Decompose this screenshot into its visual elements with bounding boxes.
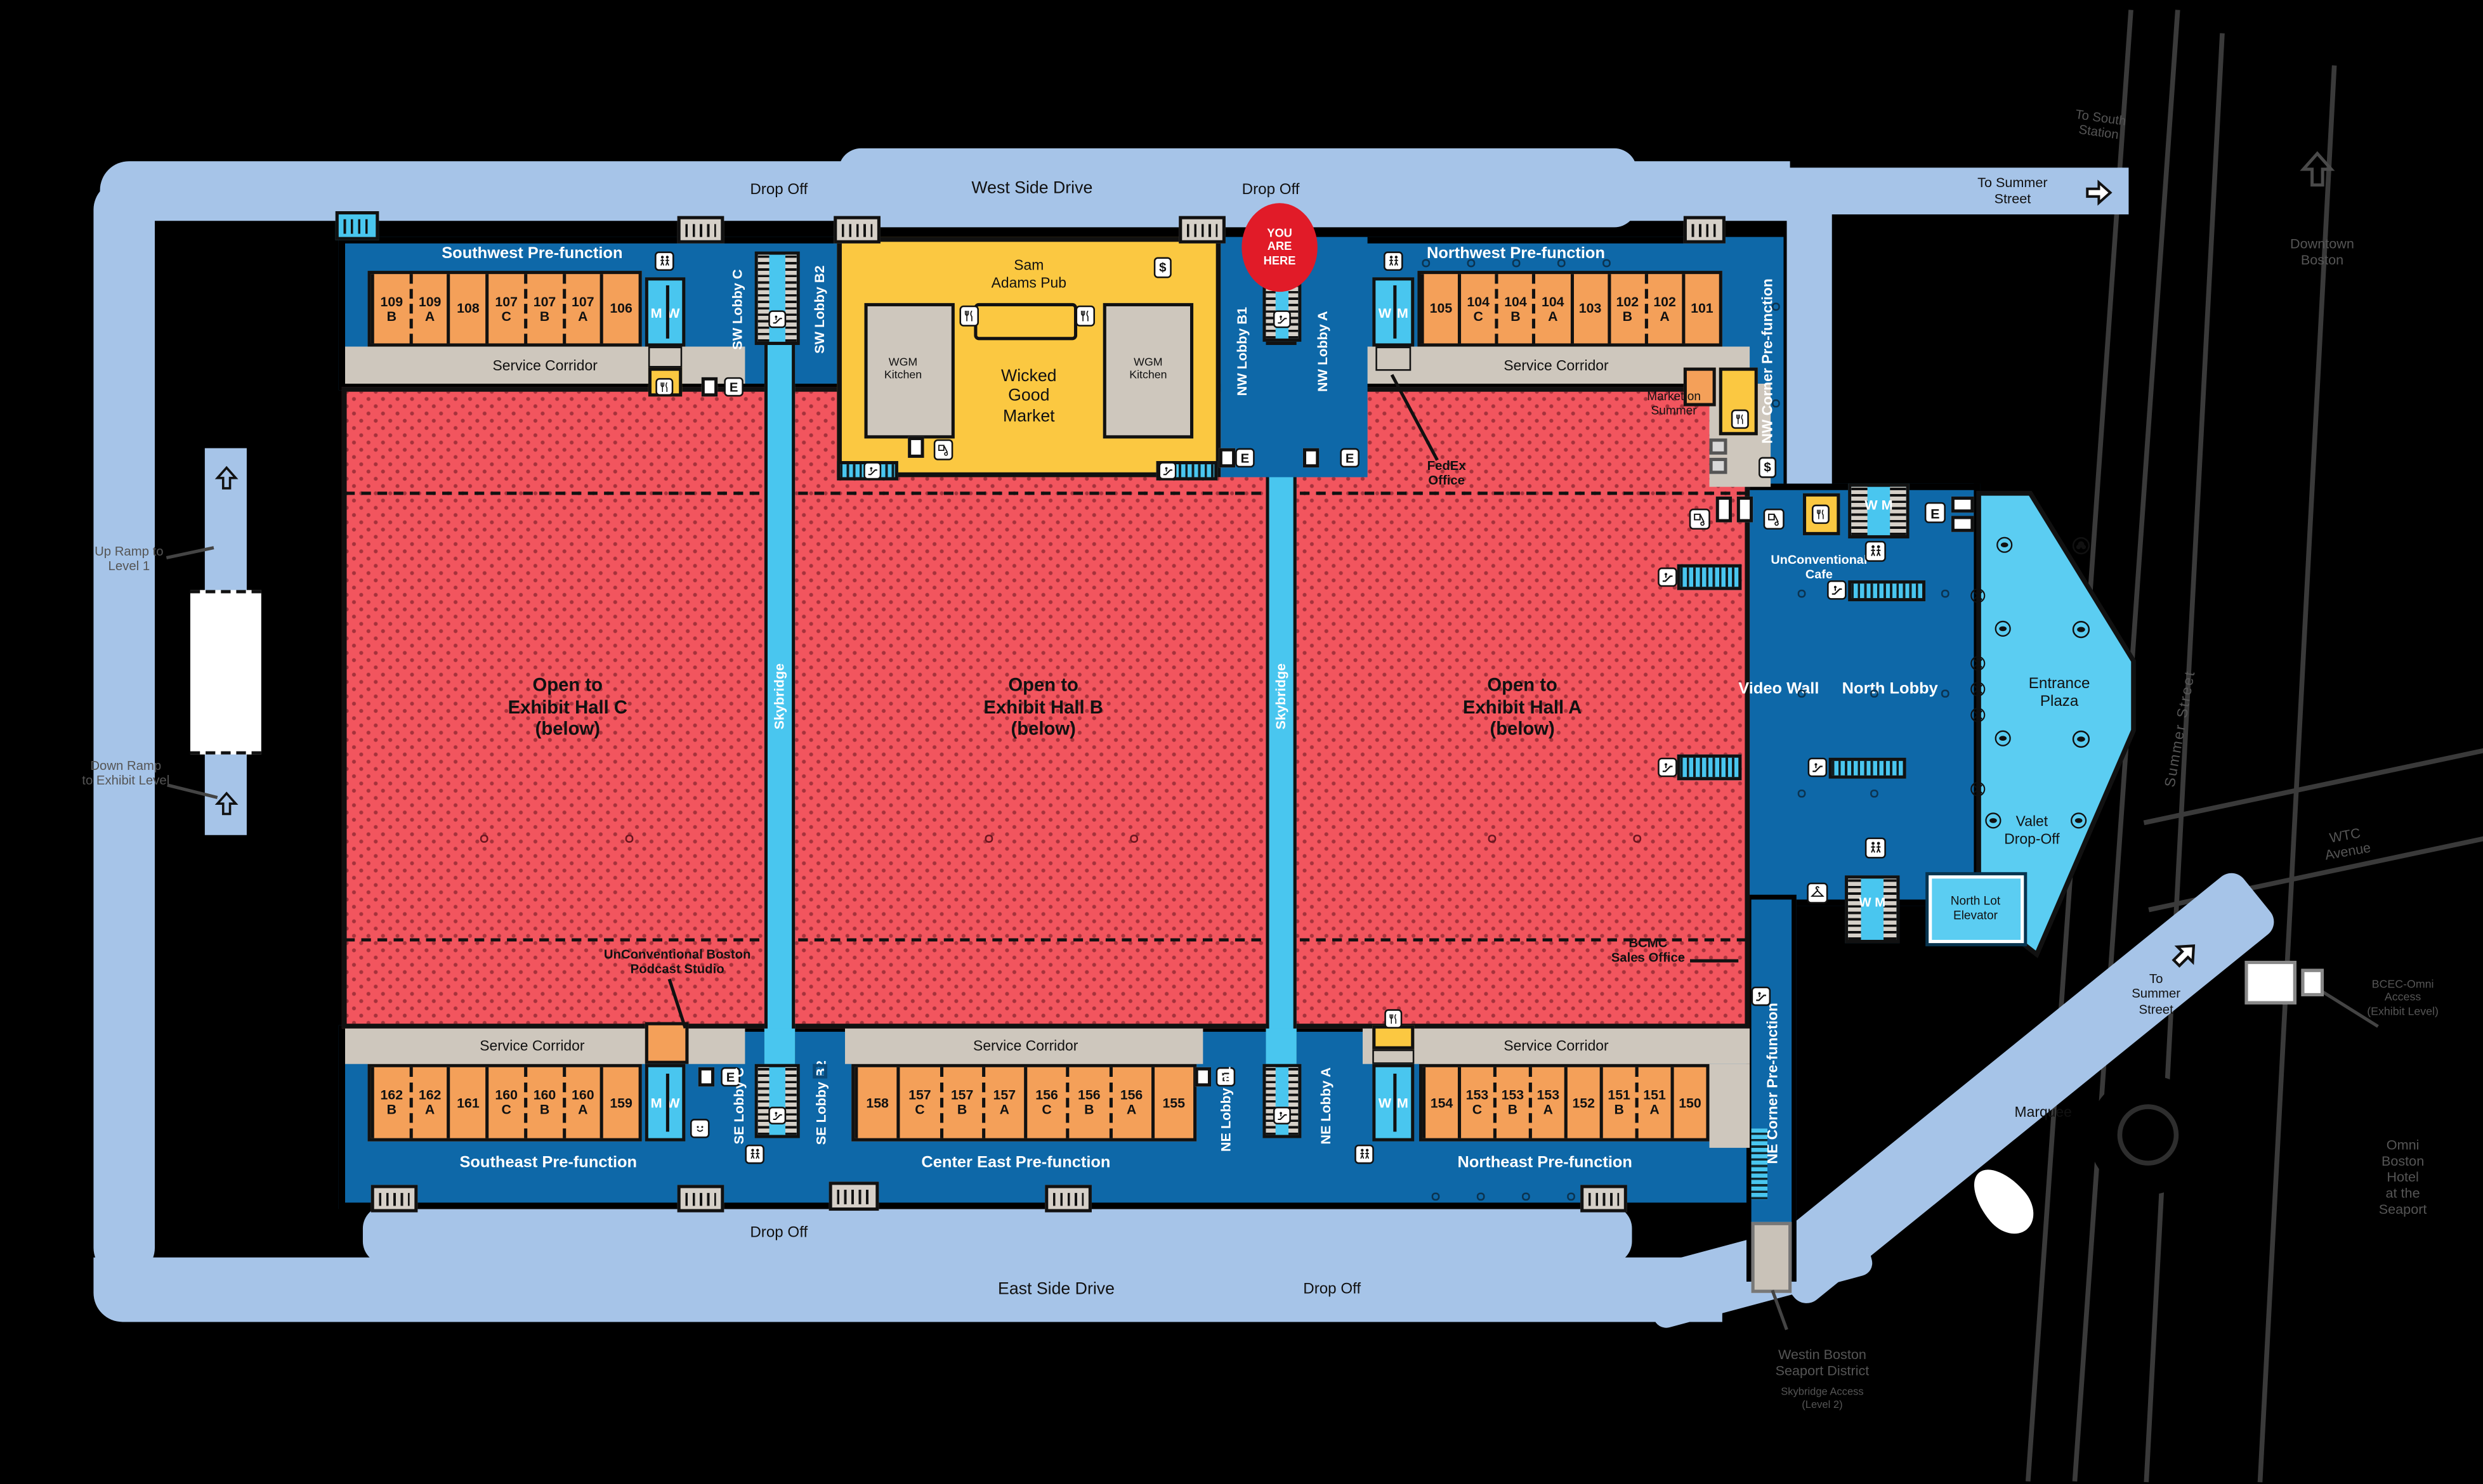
door xyxy=(702,377,717,397)
wgm-kitchen-label: WGMKitchen xyxy=(1129,358,1167,384)
room-159: 159 xyxy=(600,1067,638,1138)
stairs xyxy=(371,1185,418,1212)
omni-hotel-label: OmniBostonHotelat theSeaport xyxy=(2379,1136,2427,1217)
se-skybridge-escalator xyxy=(755,1064,800,1138)
pub-counter xyxy=(974,303,1077,340)
bcmc-leader xyxy=(1690,959,1738,961)
rotary-ring xyxy=(2118,1104,2179,1166)
room-157B: 157B xyxy=(940,1067,982,1138)
entrance-plaza-label: EntrancePlaza xyxy=(2029,675,2090,712)
window xyxy=(813,1064,827,1079)
se-lobby-c-label: SE Lobby C xyxy=(731,1067,747,1144)
sam-adams-pub-label: SamAdams Pub xyxy=(992,257,1066,291)
ne-pantry xyxy=(1372,1050,1414,1064)
room-104C: 104C xyxy=(1458,274,1495,343)
room-104B: 104B xyxy=(1495,274,1533,343)
video-wall-label: Video Wall xyxy=(1738,680,1819,700)
stairs xyxy=(1580,1185,1627,1212)
hall-column xyxy=(1633,835,1640,842)
up-ramp-arrow-icon xyxy=(213,464,240,491)
to-summer-arrow-icon xyxy=(2083,178,2114,208)
hall-b-label: Open toExhibit Hall B(below) xyxy=(983,677,1103,742)
service-corridor-label: Service Corridor xyxy=(1504,358,1608,375)
drop-off-label: Drop Off xyxy=(1242,181,1300,199)
fedex-office-label: FedExOffice xyxy=(1427,459,1466,489)
door xyxy=(908,437,924,458)
room-101: 101 xyxy=(1682,274,1719,343)
escalator-icon xyxy=(1752,987,1771,1006)
column xyxy=(1512,259,1519,266)
food-icon xyxy=(1731,410,1749,429)
escalator-icon xyxy=(1658,568,1677,587)
street-line xyxy=(2258,65,2336,1482)
room-157A: 157A xyxy=(981,1067,1024,1138)
food-icon xyxy=(655,378,673,396)
hall-column xyxy=(626,835,632,842)
column xyxy=(1798,790,1805,797)
sw-restrooms: MW xyxy=(645,277,686,346)
downtown-boston-label: DowntownBoston xyxy=(2290,235,2354,268)
bcec-omni-skybridge xyxy=(2244,961,2296,1005)
drop-off-label: Drop Off xyxy=(750,1224,808,1242)
north-lobby-label: North Lobby xyxy=(1842,680,1938,700)
column xyxy=(1870,689,1877,696)
skybridge-gap xyxy=(1266,1029,1296,1064)
escalator-icon xyxy=(1827,580,1847,600)
restroom-icon xyxy=(745,1145,764,1164)
column xyxy=(1772,303,1779,309)
hall-column xyxy=(1130,835,1137,842)
ne-skybridge-escalator xyxy=(1262,1064,1301,1138)
west-side-drive-bulge xyxy=(839,148,1637,228)
revolving-door-icon xyxy=(2069,811,2088,831)
room-160B: 160B xyxy=(524,1067,562,1138)
room-103: 103 xyxy=(1570,274,1608,343)
podcast-studio-label: UnConventional BostonPodcast Studio xyxy=(604,947,751,978)
column xyxy=(1467,259,1474,266)
nw-restrooms: WM xyxy=(1372,277,1414,346)
ne-prefunction-label: Northeast Pre-function xyxy=(1458,1154,1632,1173)
east-side-drive-label: East Side Drive xyxy=(998,1280,1115,1299)
room-row-ne: 154153C153B153A152151B151A150 xyxy=(1419,1064,1710,1142)
escalator-icon xyxy=(1658,758,1677,778)
escalator-icon xyxy=(1808,758,1828,778)
street-line xyxy=(2144,33,2224,1482)
revolving-door-icon xyxy=(2071,619,2092,640)
column xyxy=(1422,259,1429,266)
room-155: 155 xyxy=(1151,1067,1193,1138)
stairs xyxy=(834,216,881,244)
downtown-arrow-icon xyxy=(2296,148,2338,190)
service-corridor-label: Service Corridor xyxy=(480,1038,584,1055)
stairs xyxy=(678,1185,724,1212)
ne-corridor-wrap xyxy=(1710,1064,1750,1148)
room-107A: 107A xyxy=(562,274,600,343)
stairs xyxy=(678,216,724,244)
room-106: 106 xyxy=(600,274,638,343)
nw-lobby-b1-label: NW Lobby B1 xyxy=(1234,307,1250,396)
column xyxy=(1798,689,1805,696)
sw-pantry xyxy=(648,347,682,368)
atm-icon: $ xyxy=(1759,457,1776,478)
room-row-nw: 105104C104B104A103102B102A101 xyxy=(1417,271,1722,346)
elevator-icon: E xyxy=(1925,502,1946,523)
sw-lobby-b2-label: SW Lobby B2 xyxy=(811,265,827,353)
door-icon xyxy=(1969,780,1987,798)
plaza-access-road xyxy=(1787,190,1832,487)
restroom-icon xyxy=(1865,838,1886,859)
se-restrooms: MW xyxy=(645,1064,686,1142)
to-summer-lower-arrow-icon xyxy=(2169,938,2201,970)
hall-dashed-line xyxy=(345,491,1746,495)
atm-icon: $ xyxy=(1154,257,1172,278)
freight-icon xyxy=(1689,509,1710,530)
hall-column xyxy=(480,835,487,842)
wtc-avenue-label: WTCAvenue xyxy=(2321,823,2372,863)
podcast-studio xyxy=(645,1022,689,1064)
drop-off-label: Drop Off xyxy=(1303,1280,1361,1298)
restroom-icon xyxy=(1865,541,1886,562)
freight-icon xyxy=(934,439,953,460)
room-109B: 109B xyxy=(371,274,409,343)
skybridge-gap xyxy=(764,1029,795,1064)
column xyxy=(1557,259,1564,266)
room-153B: 153B xyxy=(1493,1067,1529,1138)
room-104A: 104A xyxy=(1533,274,1570,343)
room-154: 154 xyxy=(1422,1067,1458,1138)
westin-skybridge xyxy=(1752,1222,1792,1293)
sw-skybridge-escalator xyxy=(755,252,800,345)
ne-cafe-bump xyxy=(1372,1025,1414,1050)
service-corridor-label: Service Corridor xyxy=(493,358,598,375)
stairs xyxy=(1045,1185,1092,1212)
north-lot-elevator-label: North LotElevator xyxy=(1951,895,2000,923)
restroom-icon xyxy=(1354,1145,1374,1164)
room-162A: 162A xyxy=(409,1067,447,1138)
room-150: 150 xyxy=(1671,1067,1707,1138)
ce-prefunction-label: Center East Pre-function xyxy=(921,1154,1110,1173)
hall-a-escalator xyxy=(1677,755,1742,781)
sw-lobby-c-label: SW Lobby C xyxy=(729,269,745,349)
corner-stairs xyxy=(1752,1128,1767,1199)
westin-sub-label: Skybridge Access(Level 2) xyxy=(1781,1387,1863,1412)
tree-icon xyxy=(2071,535,2092,556)
market-on-summer-label: Market onSummer xyxy=(1647,391,1701,419)
drop-off-label: Drop Off xyxy=(750,181,808,199)
elevator-icon: E xyxy=(1340,448,1359,468)
coat-check-icon xyxy=(1807,883,1828,904)
down-ramp-label: Down Rampto Exhibit Level xyxy=(82,758,169,789)
room-109A: 109A xyxy=(409,274,447,343)
elevator-icon: E xyxy=(724,377,744,397)
revolving-door-icon xyxy=(1984,811,2003,831)
freight-icon xyxy=(1764,509,1785,530)
left-road xyxy=(93,181,155,1277)
se-prefunction-label: Southeast Pre-function xyxy=(459,1154,637,1173)
east-drop-off-lane xyxy=(363,1206,1632,1264)
room-151A: 151A xyxy=(1635,1067,1671,1138)
east-side-drive-road xyxy=(93,1258,1722,1322)
service-corridor-label: Service Corridor xyxy=(973,1038,1078,1055)
column xyxy=(1522,1192,1529,1199)
lobby-escalator xyxy=(1829,758,1906,779)
stairs xyxy=(1684,216,1726,244)
room-108: 108 xyxy=(447,274,485,343)
elevator-shaft xyxy=(1951,497,1974,512)
hall-a-escalator xyxy=(1677,564,1742,590)
elevator-shaft xyxy=(1951,516,1974,531)
door xyxy=(1195,1067,1211,1087)
hall-c-label: Open toExhibit Hall C(below) xyxy=(508,677,627,742)
room-160A: 160A xyxy=(562,1067,600,1138)
valet-drop-off-label: ValetDrop-Off xyxy=(2004,813,2059,847)
ramp-landing xyxy=(190,590,261,754)
door xyxy=(698,1067,714,1087)
room-row-ce: 158157C157B157A156C156B156A155 xyxy=(851,1064,1196,1142)
room-162B: 162B xyxy=(371,1067,409,1138)
down-ramp-arrow-icon xyxy=(213,790,240,817)
wtc-avenue-line xyxy=(2144,746,2483,824)
door-icon xyxy=(1969,706,1987,724)
door-icon xyxy=(1969,654,1987,672)
bcec-level-2-map: To SouthStation DowntownBoston Summer St… xyxy=(0,0,2483,1483)
unconventional-cafe-label: UnConventionalCafe xyxy=(1771,552,1867,582)
revolving-door-icon xyxy=(1993,729,2013,748)
nw-lobby-a-label: NW Lobby A xyxy=(1314,311,1330,392)
lobby-wm-label: W M xyxy=(1864,497,1892,512)
service-corridor-label: Service Corridor xyxy=(1504,1038,1608,1055)
ne-lobby-a-label: NE Lobby A xyxy=(1318,1067,1333,1145)
column xyxy=(1432,1192,1439,1199)
skybridge-label: Skybridge xyxy=(771,663,787,730)
stairs xyxy=(336,211,379,240)
escalator-icon xyxy=(1273,310,1291,328)
you-are-here-badge: YOUAREHERE xyxy=(1241,203,1317,292)
westin-label: Westin BostonSeaport District xyxy=(1776,1346,1870,1379)
ne-lobby-b1-label: NE Lobby B1 xyxy=(1217,1067,1233,1152)
revolving-door-icon xyxy=(1995,535,2014,555)
room-156C: 156C xyxy=(1024,1067,1066,1138)
wgm-kitchen-label: WGMKitchen xyxy=(884,358,922,384)
storage xyxy=(1710,458,1727,474)
room-102B: 102B xyxy=(1607,274,1644,343)
marquee-label: Marquee xyxy=(2015,1103,2072,1121)
escalator-icon xyxy=(768,310,786,328)
column xyxy=(1772,400,1779,407)
to-summer-street-label: To SummerStreet xyxy=(1977,174,2047,206)
room-107B: 107B xyxy=(524,274,562,343)
hall-dashed-line xyxy=(345,938,1746,941)
room-161: 161 xyxy=(447,1067,485,1138)
west-side-drive-label: West Side Drive xyxy=(971,179,1092,199)
escalator-icon xyxy=(863,462,881,479)
door xyxy=(1219,448,1235,468)
to-summer-street-lower-label: ToSummerStreet xyxy=(2132,972,2180,1017)
revolving-door-icon xyxy=(1993,619,2013,639)
hall-column xyxy=(985,835,992,842)
storage xyxy=(1710,438,1727,454)
crosswalk xyxy=(2301,969,2324,996)
stairs xyxy=(1179,216,1226,244)
hall-a-label: Open toExhibit Hall A(below) xyxy=(1463,677,1582,742)
food-icon xyxy=(1812,505,1830,524)
food-icon xyxy=(959,306,979,327)
room-153A: 153A xyxy=(1529,1067,1564,1138)
sw-prefunction-label: Southwest Pre-function xyxy=(442,245,622,264)
restroom-icon xyxy=(655,252,674,271)
fountain-icon xyxy=(690,1119,710,1138)
skybridge-label: Skybridge xyxy=(1273,663,1288,730)
room-152: 152 xyxy=(1564,1067,1600,1138)
revolving-door-icon xyxy=(2071,729,2092,750)
escalator-icon xyxy=(1273,1107,1291,1124)
column xyxy=(1870,790,1877,797)
room-160C: 160C xyxy=(486,1067,524,1138)
bcec-omni-access-label: BCEC-OmniAccess(Exhibit Level) xyxy=(2367,980,2439,1020)
summer-street-label: Summer Street xyxy=(2161,669,2199,789)
food-icon xyxy=(1076,306,1096,327)
stairs xyxy=(829,1181,879,1211)
bcmc-sales-office-label: BCMCSales Office xyxy=(1611,936,1685,967)
room-102A: 102A xyxy=(1644,274,1682,343)
column xyxy=(1941,590,1948,597)
column xyxy=(1941,689,1948,696)
door xyxy=(1716,497,1732,523)
column xyxy=(1477,1192,1484,1199)
wicked-good-market-label: WickedGoodMarket xyxy=(1001,367,1057,426)
restroom-icon xyxy=(1384,252,1403,271)
escalator-icon xyxy=(1158,462,1176,479)
lobby-wm-lower-label: W M xyxy=(1859,895,1885,911)
room-153C: 153C xyxy=(1458,1067,1493,1138)
to-south-station-label: To SouthStation xyxy=(2073,107,2127,145)
escalator-icon xyxy=(768,1107,786,1124)
hall-column xyxy=(1488,835,1495,842)
lobby-escalator xyxy=(1848,580,1925,601)
door-icon xyxy=(1969,680,1987,698)
elevator-icon: E xyxy=(1235,448,1255,468)
room-157C: 157C xyxy=(897,1067,940,1138)
room-156B: 156B xyxy=(1066,1067,1109,1138)
column xyxy=(1602,259,1609,266)
room-105: 105 xyxy=(1421,274,1458,343)
fedex-office-room xyxy=(1375,347,1411,371)
door xyxy=(1303,448,1319,468)
column xyxy=(1567,1192,1574,1199)
column xyxy=(1798,590,1805,597)
up-ramp-label: Up Ramp toLevel 1 xyxy=(95,544,164,575)
food-icon xyxy=(1384,1009,1402,1029)
room-row-sw: 109B109A108107C107B107A106 xyxy=(368,271,642,346)
room-151B: 151B xyxy=(1600,1067,1635,1138)
room-row-se: 162B162A161160C160B160A159 xyxy=(368,1064,642,1142)
room-107C: 107C xyxy=(486,274,524,343)
door-icon xyxy=(1969,587,1987,604)
ne-restrooms: WM xyxy=(1372,1064,1414,1142)
room-158: 158 xyxy=(855,1067,897,1138)
door xyxy=(1737,497,1753,523)
room-156A: 156A xyxy=(1109,1067,1151,1138)
